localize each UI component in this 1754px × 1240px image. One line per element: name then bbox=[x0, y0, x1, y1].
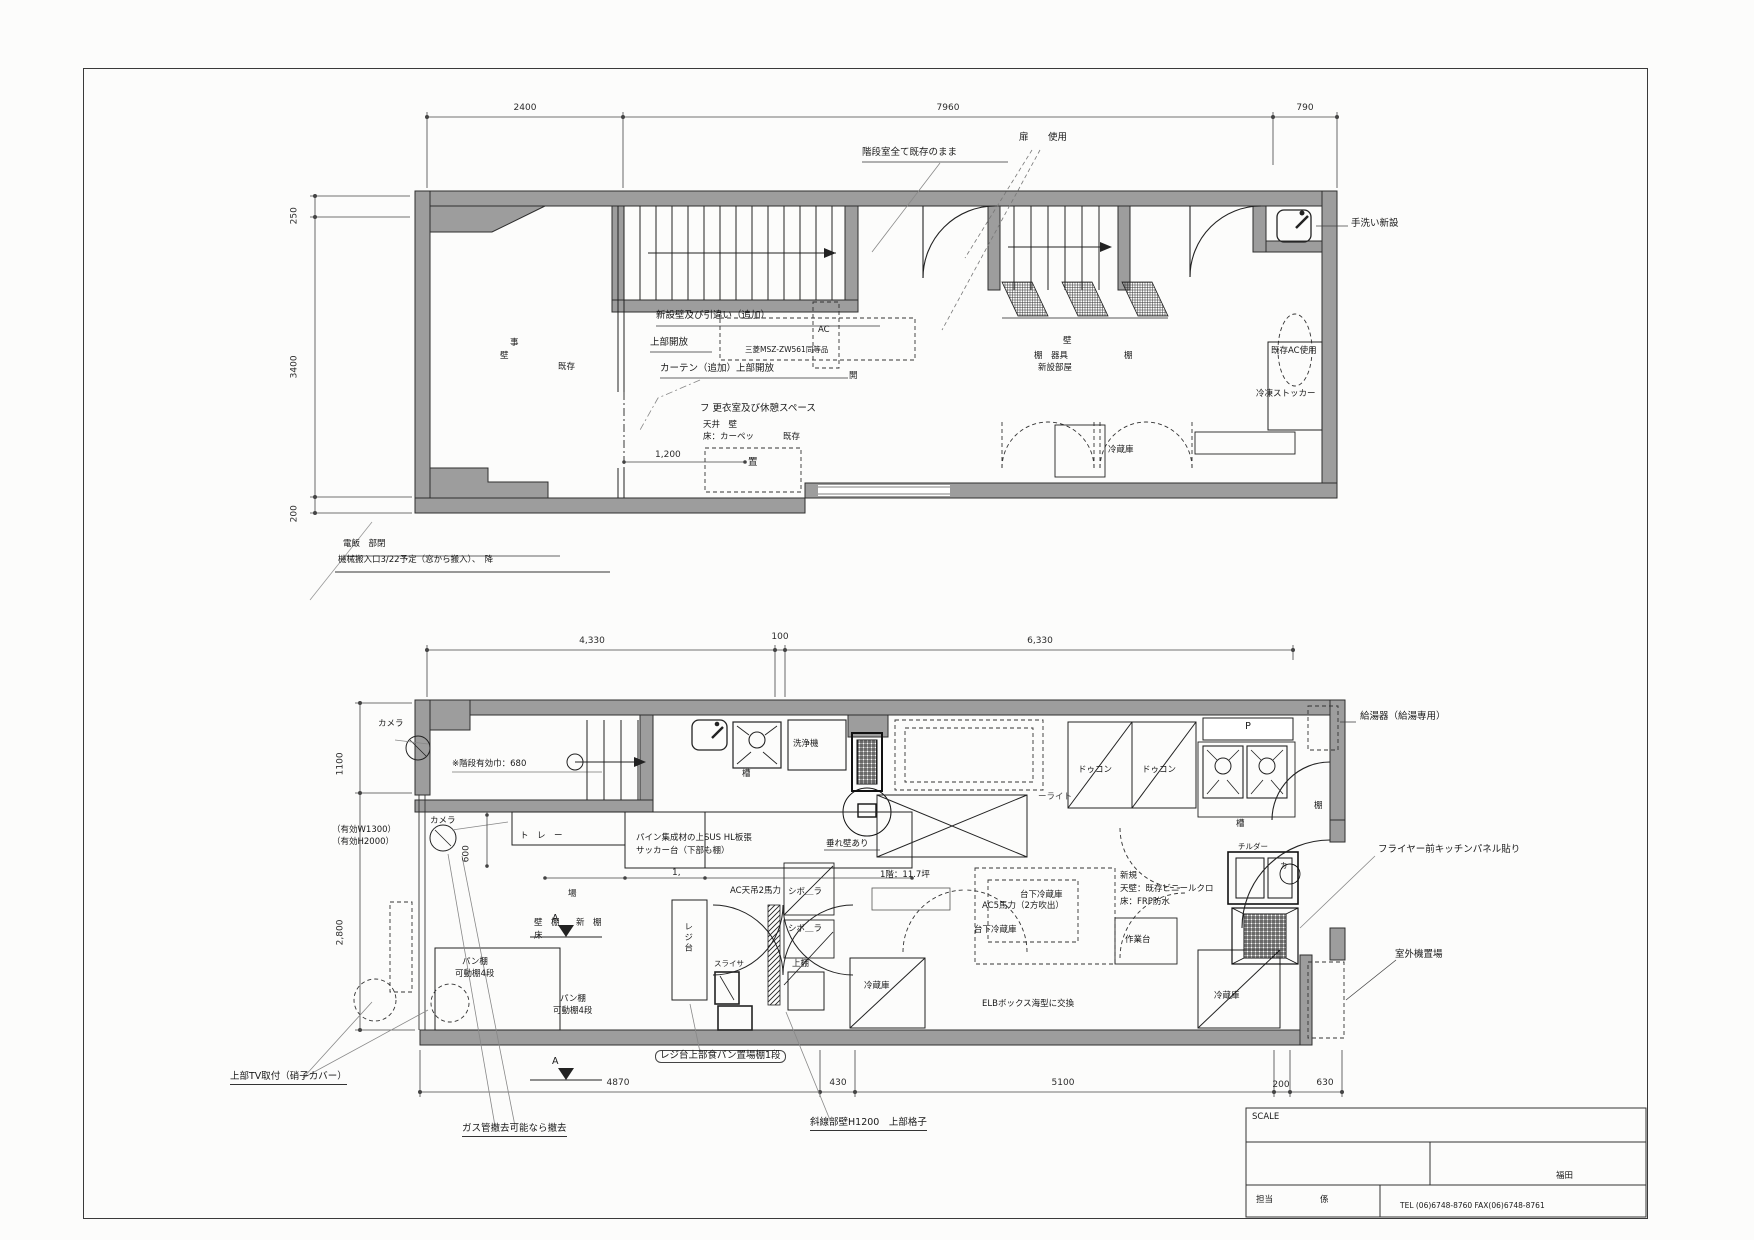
label-freezer-stocker: 冷凍ストッカー bbox=[1256, 390, 1316, 400]
dim-6330: 6,330 bbox=[1027, 636, 1053, 646]
plan2f-door-arcs bbox=[923, 206, 1261, 278]
label-sibo-2: シボ＿ラ bbox=[788, 925, 822, 935]
note-tv-mount: 上部TV取付（硝子カバー） bbox=[230, 1072, 347, 1085]
label-ka: カ bbox=[1280, 862, 1288, 871]
label-counter-1: パイン集成材の上SUS HL板張 bbox=[636, 834, 752, 844]
plan1f-storefront-glass bbox=[419, 795, 425, 1030]
label-ac5: AC5馬力（2方吹出） bbox=[982, 902, 1064, 912]
label-room-b: 壁 bbox=[500, 352, 509, 362]
label-under-fridge-2: 台下冷蔵庫 bbox=[974, 926, 1017, 936]
label-oki: 置 bbox=[748, 458, 758, 469]
label-shelf-fixture: 棚 器具 bbox=[1034, 352, 1068, 362]
label-outdoor-unit: 室外機置場 bbox=[1395, 950, 1443, 961]
label-shelf-2: 棚 bbox=[1124, 352, 1133, 362]
label-under-fridge-1: 台下冷蔵庫 bbox=[1020, 891, 1063, 901]
plan1f-sinks bbox=[692, 720, 846, 770]
label-upper-shelf: 上棚 bbox=[792, 960, 809, 970]
dim-4330: 4,330 bbox=[579, 636, 605, 646]
label-camera-2: カメラ bbox=[430, 817, 456, 827]
label-counter-2: サッカー台（下部も棚） bbox=[636, 847, 730, 857]
label-tank-2: 槽 bbox=[1236, 820, 1245, 830]
section-mark-a2: A bbox=[552, 1057, 559, 1068]
label-open-char: 開 bbox=[849, 372, 858, 382]
label-fridge-right: 冷蔵庫 bbox=[1214, 992, 1240, 1002]
label-upper-open: 上部開放 bbox=[650, 338, 688, 349]
label-handwash-new: 手洗い新設 bbox=[1351, 219, 1399, 230]
label-fridge-2f: 冷蔵庫 bbox=[1108, 446, 1134, 456]
label-bread-shelf-1a: パン棚 bbox=[462, 958, 488, 968]
drawing-sheet: 2400 7960 790 250 3400 200 1,200 階段室全て既存… bbox=[0, 0, 1754, 1240]
label-room-a: 事 bbox=[510, 339, 519, 349]
label-washer: 洗浄機 bbox=[793, 740, 819, 750]
label-tray: ト レ ー bbox=[520, 832, 563, 842]
note-stairwell-existing: 階段室全て既存のまま bbox=[862, 148, 957, 159]
label-wall-2: 壁 bbox=[1063, 337, 1072, 347]
label-ba: 場 bbox=[568, 890, 577, 900]
plan1f-worktable-x bbox=[877, 795, 1027, 857]
plan2f-double-doors-dashed bbox=[1002, 422, 1192, 468]
label-floor-char: 床 bbox=[534, 932, 543, 942]
label-new-wall-sliding: 新設壁及び引違い（追加） bbox=[656, 311, 770, 322]
label-room-existing: 既存 bbox=[558, 363, 575, 373]
plan2f-dashed-fixtures bbox=[705, 302, 1312, 492]
plan2f-dimensions bbox=[310, 112, 1339, 515]
label-slicer: スライサ bbox=[714, 960, 744, 969]
plan1f-stair bbox=[567, 720, 646, 800]
plan1f-cameras bbox=[395, 736, 508, 851]
note-denhan: 電飯 部閉 bbox=[343, 540, 386, 550]
label-existing-ac-use: 既存AC使用 bbox=[1271, 347, 1317, 357]
titleblock-name: 福田 bbox=[1556, 1172, 1573, 1182]
titleblock-tel: TEL (06)6748-8760 FAX(06)6748-8761 bbox=[1400, 1202, 1545, 1211]
label-camera-1: カメラ bbox=[378, 720, 404, 730]
label-door: 扉 bbox=[1019, 133, 1029, 144]
note-hatched-wall: 斜線部壁H1200 上部格子 bbox=[810, 1118, 927, 1131]
label-new-room: 新設部屋 bbox=[1038, 364, 1072, 374]
titleblock-scale-label: SCALE bbox=[1252, 1113, 1279, 1123]
dim-1200: 1,200 bbox=[655, 450, 681, 460]
plan1f-hatch-wall bbox=[768, 905, 780, 1005]
label-floor-area: 1階：11.7坪 bbox=[880, 871, 930, 881]
label-door-use: 使用 bbox=[1048, 133, 1067, 144]
label-floor-frp: 床：FRP防水 bbox=[1120, 898, 1170, 908]
label-stair-width: ※階段有効巾：680 bbox=[452, 760, 526, 770]
label-sibo-1: シボ＿ラ bbox=[788, 888, 822, 898]
label-hanging-wall: 垂れ壁あり bbox=[826, 840, 869, 850]
label-wall-vinyl: 天壁：既存ビニールクロ bbox=[1120, 885, 1214, 895]
label-light-frag: ーライト bbox=[1038, 793, 1072, 803]
dim-790: 790 bbox=[1296, 103, 1313, 113]
label-ac-model: 三菱MSZ-ZW561同等品 bbox=[745, 346, 828, 355]
plan2f-stair2 bbox=[1008, 206, 1112, 290]
plan1f-oven-dashed bbox=[895, 720, 1043, 790]
label-bread-shelf-2b: 可動棚4段 bbox=[553, 1007, 592, 1017]
label-ceiling-wall: 天井 壁 bbox=[703, 421, 737, 431]
label-bread-shelf-2a: パン棚 bbox=[560, 995, 586, 1005]
plan1f-chiller-fryer bbox=[1228, 852, 1300, 964]
dim-100: 100 bbox=[771, 632, 788, 642]
note-gas-pipe: ガス管撤去可能なら撤去 bbox=[462, 1124, 567, 1137]
label-new-note: 新規 bbox=[1120, 872, 1137, 882]
label-new-shelf: 新 棚 bbox=[576, 919, 602, 929]
label-deck-oven-2: ドゥコン bbox=[1142, 766, 1176, 776]
label-tank-1: 槽 bbox=[742, 770, 751, 780]
plan1f-area-box bbox=[872, 888, 950, 910]
label-dressing-room: フ 更衣室及び休憩スペース bbox=[700, 404, 816, 415]
dim-3400: 3400 bbox=[290, 355, 300, 378]
dim-1-frag: 1, bbox=[672, 868, 681, 878]
label-eff-w: （有効W1300） bbox=[332, 826, 396, 836]
label-shelf-right: 棚 bbox=[1314, 802, 1323, 812]
dim-200b: 200 bbox=[1272, 1080, 1289, 1090]
floor-plan-linework bbox=[0, 0, 1754, 1240]
dim-630: 630 bbox=[1316, 1078, 1333, 1088]
dim-430: 430 bbox=[829, 1078, 846, 1088]
label-water-heater: 給湯器（給湯専用） bbox=[1360, 712, 1446, 723]
dim-2400: 2400 bbox=[514, 103, 537, 113]
dim-200: 200 bbox=[290, 505, 300, 522]
dim-7960: 7960 bbox=[937, 103, 960, 113]
plan1f-fridges bbox=[850, 950, 1280, 1028]
dim-600: 600 bbox=[462, 845, 472, 862]
plan2f-stair1 bbox=[640, 206, 836, 300]
dim-250: 250 bbox=[290, 207, 300, 224]
titleblock-kakari: 係 bbox=[1320, 1196, 1329, 1206]
label-ac-ceiling: AC天吊2馬力 bbox=[730, 887, 781, 897]
label-deck-oven-1: ドゥコン bbox=[1078, 766, 1112, 776]
plan2f-walls bbox=[415, 191, 1337, 513]
label-bread-shelf-1b: 可動棚4段 bbox=[455, 970, 494, 980]
titleblock-tanto: 担当 bbox=[1256, 1196, 1273, 1206]
note-machine-carry-in: 機械搬入口3/22予定（窓から搬入）、 降 bbox=[338, 556, 493, 566]
label-elb: ELBボックス海型に交換 bbox=[982, 1000, 1074, 1010]
label-floor-carpet: 床：カーペッ bbox=[703, 433, 754, 443]
label-existing-1: 既存 bbox=[783, 433, 800, 443]
label-eff-h: （有効H2000） bbox=[332, 838, 394, 848]
label-fridge-left: 冷蔵庫 bbox=[864, 982, 890, 992]
label-p: P bbox=[1245, 722, 1251, 733]
label-fryer-panel: フライヤー前キッチンパネル貼り bbox=[1378, 845, 1520, 856]
plan2f-hatched-shelves bbox=[1002, 282, 1168, 318]
dim-2800: 2,800 bbox=[336, 920, 346, 946]
label-ac: AC bbox=[818, 326, 830, 336]
dim-4870: 4870 bbox=[607, 1078, 630, 1088]
label-worktable: 作業台 bbox=[1125, 936, 1151, 946]
section-mark-a1: A bbox=[552, 914, 559, 925]
plan2f-wall-opening bbox=[818, 485, 950, 496]
note-bread-shelf-over-register: レジ台上部食パン置場棚1段 bbox=[655, 1050, 786, 1063]
label-register: レジ台 bbox=[682, 922, 692, 954]
dim-5100: 5100 bbox=[1052, 1078, 1075, 1088]
dim-1100: 1100 bbox=[336, 752, 346, 775]
label-chiller: チルダー bbox=[1238, 843, 1268, 852]
label-curtain-upper-open: カーテン（追加）上部開放 bbox=[660, 364, 774, 375]
plan1f-dark-fixture bbox=[843, 733, 891, 836]
